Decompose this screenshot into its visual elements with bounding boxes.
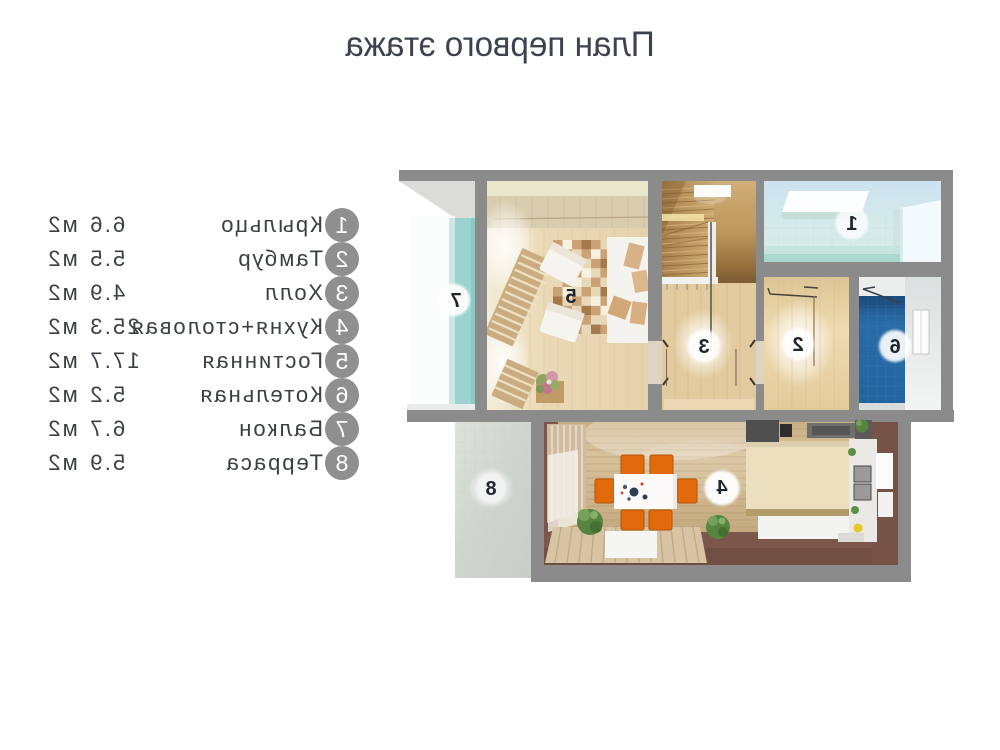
svg-text:8: 8 xyxy=(485,478,496,500)
svg-text:4: 4 xyxy=(716,477,728,499)
svg-text:3: 3 xyxy=(698,336,709,358)
svg-text:6: 6 xyxy=(889,336,900,358)
svg-text:2: 2 xyxy=(792,334,803,356)
svg-text:1: 1 xyxy=(846,213,857,235)
svg-text:7: 7 xyxy=(450,290,461,312)
svg-text:5: 5 xyxy=(565,286,576,308)
